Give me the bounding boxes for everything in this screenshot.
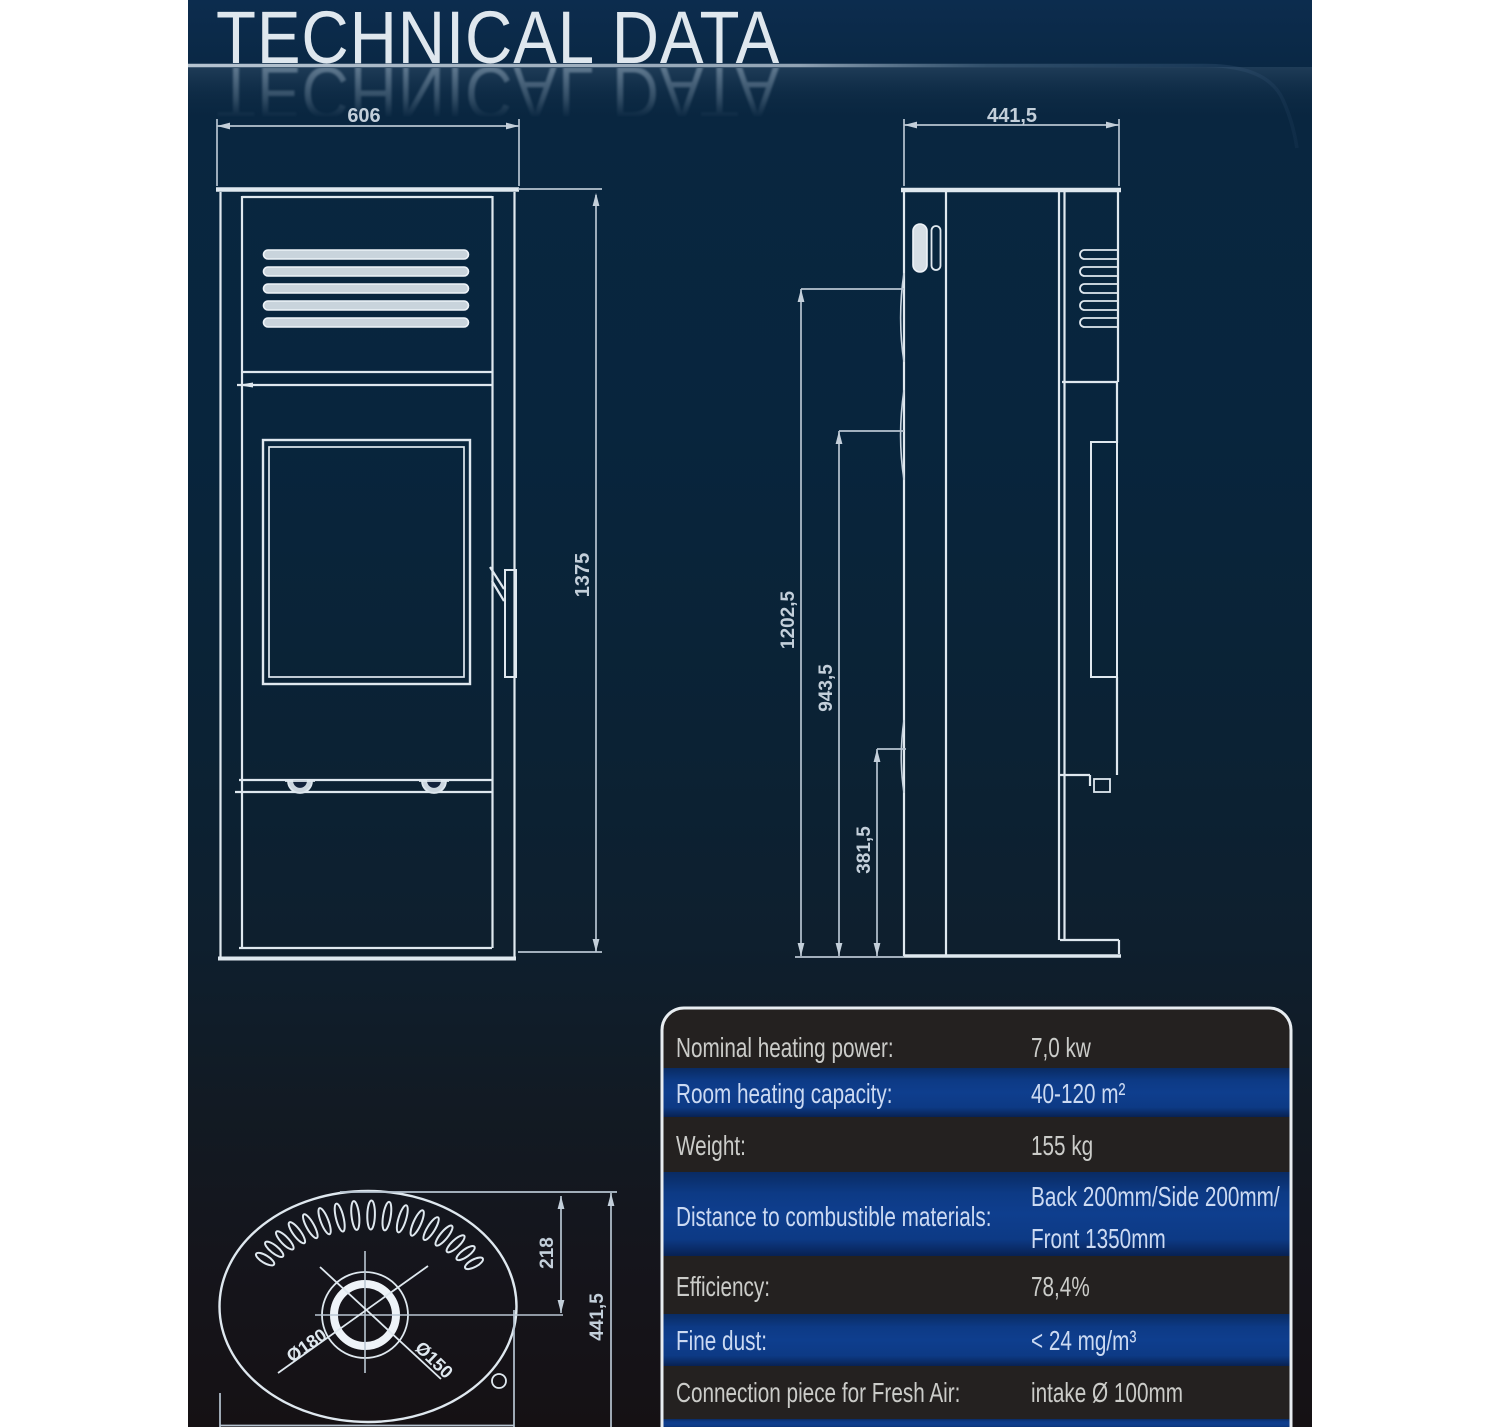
- svg-text:381,5: 381,5: [854, 826, 875, 874]
- svg-text:Nominal heating power:: Nominal heating power:: [676, 1033, 894, 1064]
- svg-text:40-120 m²: 40-120 m²: [1031, 1079, 1125, 1110]
- svg-text:155 kg: 155 kg: [1031, 1131, 1093, 1162]
- svg-text:intake Ø 100mm: intake Ø 100mm: [1031, 1378, 1183, 1409]
- svg-text:1202,5: 1202,5: [778, 591, 799, 650]
- svg-text:1375: 1375: [572, 553, 594, 598]
- svg-text:Weight:: Weight:: [676, 1131, 746, 1162]
- svg-text:441,5: 441,5: [587, 1293, 608, 1341]
- svg-text:Back 200mm/Side 200mm/: Back 200mm/Side 200mm/: [1031, 1182, 1280, 1213]
- svg-text:Front 1350mm: Front 1350mm: [1031, 1224, 1166, 1255]
- svg-text:943,5: 943,5: [816, 664, 837, 712]
- svg-text:218: 218: [537, 1237, 558, 1269]
- svg-text:Efficiency:: Efficiency:: [676, 1272, 770, 1303]
- svg-text:Room heating capacity:: Room heating capacity:: [676, 1079, 892, 1110]
- svg-text:78,4%: 78,4%: [1031, 1272, 1090, 1303]
- svg-text:Fine dust:: Fine dust:: [676, 1326, 767, 1357]
- svg-text:< 24 mg/m³: < 24 mg/m³: [1031, 1326, 1136, 1357]
- svg-text:606: 606: [347, 105, 380, 127]
- svg-text:Connection piece for Fresh Air: Connection piece for Fresh Air:: [676, 1378, 960, 1409]
- svg-text:7,0 kw: 7,0 kw: [1031, 1033, 1091, 1064]
- svg-text:441,5: 441,5: [987, 105, 1037, 127]
- svg-text:Distance to combustible materi: Distance to combustible materials:: [676, 1202, 991, 1233]
